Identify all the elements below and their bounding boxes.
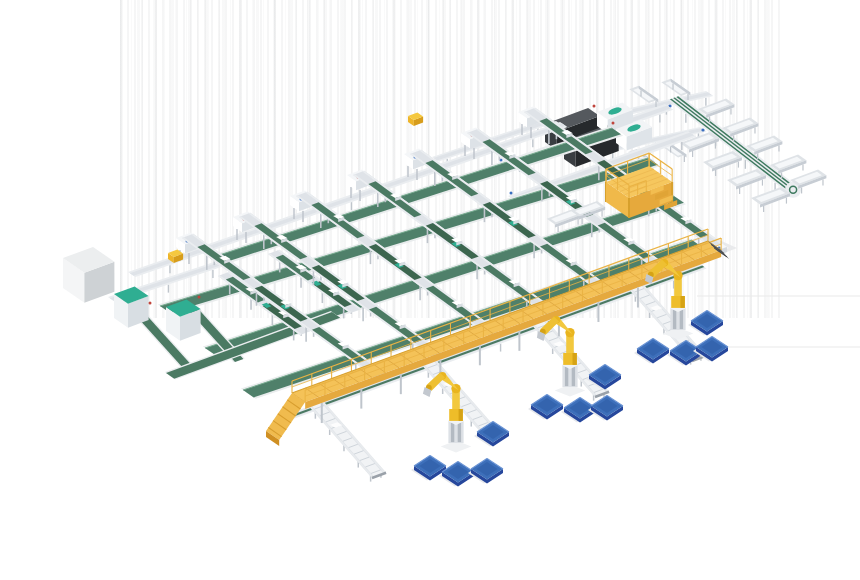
sensor-dot <box>612 122 615 125</box>
sensor-dot <box>198 296 201 299</box>
sensor-dot <box>510 192 513 195</box>
facility-3d-render <box>0 0 860 580</box>
control-cabinet <box>63 247 114 303</box>
pallet <box>528 395 563 420</box>
sensor-dot <box>593 105 596 108</box>
sorting-facility-illustration <box>0 0 860 580</box>
pallet <box>688 311 723 336</box>
pallet <box>468 459 503 484</box>
chute-tray <box>703 151 742 176</box>
sensor-dot <box>149 302 152 305</box>
pallet <box>634 339 669 364</box>
outfeed-lane <box>307 399 386 482</box>
chute-tray <box>727 169 766 194</box>
tote-lift <box>166 299 201 340</box>
diverter <box>408 113 423 127</box>
sensor-dot <box>701 128 704 131</box>
tote-lift <box>114 286 149 327</box>
chute-tray <box>751 187 790 212</box>
